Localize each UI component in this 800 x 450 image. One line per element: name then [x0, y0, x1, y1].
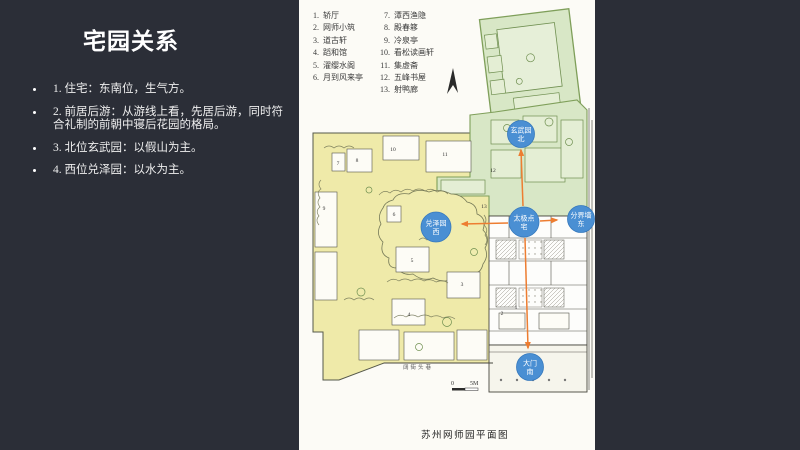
scale-zero-label: 0 — [451, 381, 454, 387]
map-caption: 苏州网师园平面图 — [335, 427, 595, 441]
plan-number: 2 — [501, 311, 504, 317]
plan-number: 11 — [442, 152, 448, 158]
direction-badge-west-garden: 兑泽园西 — [421, 212, 451, 242]
east-boundary-wall — [589, 108, 592, 390]
north-arrow-icon — [447, 68, 458, 94]
plan-number: 13 — [481, 204, 487, 210]
bullet-text: 4. 西位兑泽园：以水为主。 — [53, 164, 191, 178]
axis-arrow — [462, 223, 508, 224]
presentation-slide: 宅园关系 1. 住宅：东南位，生气方。 2. 前居后游：从游线上看，先居后游，同… — [0, 0, 800, 450]
street: 阔街头巷 — [384, 363, 493, 371]
plan-number: 12 — [490, 168, 496, 174]
scale-bar: 0 5M — [451, 381, 479, 391]
bullet-list: 1. 住宅：东南位，生气方。 2. 前居后游：从游线上看，先居后游，同时符合礼制… — [30, 83, 288, 187]
bullet-item: 3. 北位玄武园：以假山为主。 — [30, 142, 288, 156]
plan-number: 1 — [515, 305, 518, 311]
bullet-text: 3. 北位玄武园：以假山为主。 — [53, 142, 203, 156]
plan-number: 4 — [408, 312, 411, 318]
direction-badge-boundary-wall-east: 分界墙东 — [568, 206, 595, 233]
bullet-text: 1. 住宅：东南位，生气方。 — [53, 83, 191, 97]
bullet-item: 2. 前居后游：从游线上看，先居后游，同时符合礼制的前朝中寝后花园的格局。 — [30, 106, 288, 133]
bullet-item: 4. 西位兑泽园：以水为主。 — [30, 164, 288, 178]
direction-badge-taiji-residence: 太极点宅 — [509, 207, 539, 237]
bullet-item: 1. 住宅：东南位，生气方。 — [30, 83, 288, 97]
direction-badge-main-gate-south: 大门南 — [517, 354, 544, 381]
bullet-dot — [33, 169, 36, 172]
street-label: 阔街头巷 — [403, 363, 433, 371]
residence-region — [489, 216, 587, 345]
plan-number: 5 — [411, 258, 414, 264]
scale-five-label: 5M — [470, 381, 479, 387]
plan-number: 6 — [393, 212, 396, 218]
bullet-dot — [33, 88, 36, 91]
bullet-text: 2. 前居后游：从游线上看，先居后游，同时符合礼制的前朝中寝后花园的格局。 — [53, 106, 288, 133]
axis-arrow — [540, 220, 557, 221]
slide-title: 宅园关系 — [83, 22, 179, 56]
map-svg: 阔街头巷 0 5M 12345678910111213 玄武园北兑泽园西太极点宅… — [299, 0, 595, 450]
north-garden-tilted-block — [479, 9, 580, 117]
direction-badge-north-garden: 玄武园北 — [508, 121, 535, 148]
plan-number: 8 — [356, 158, 359, 164]
plan-number: 3 — [461, 282, 464, 288]
bullet-dot — [33, 147, 36, 150]
bullet-dot — [33, 111, 36, 114]
plan-number: 10 — [390, 147, 396, 153]
map-image-panel: 1.轿厅2.网师小筑3.道古轩4.蹈和馆5.濯缨水阁6.月到风来亭 7.潭西渔隐… — [299, 0, 595, 450]
plan-number: 9 — [323, 206, 326, 212]
plan-number: 7 — [337, 161, 340, 167]
